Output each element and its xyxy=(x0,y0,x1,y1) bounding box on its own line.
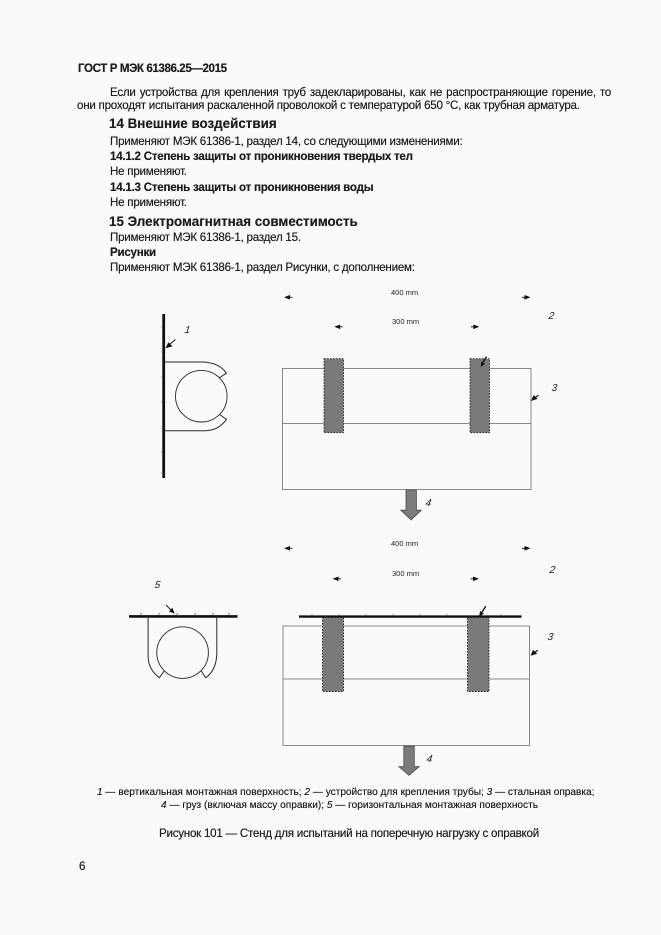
svg-text:300 mm: 300 mm xyxy=(392,569,419,578)
svg-text:400 mm: 400 mm xyxy=(391,539,418,548)
svg-text:400 mm: 400 mm xyxy=(391,288,418,297)
svg-text:300 mm: 300 mm xyxy=(392,317,419,326)
